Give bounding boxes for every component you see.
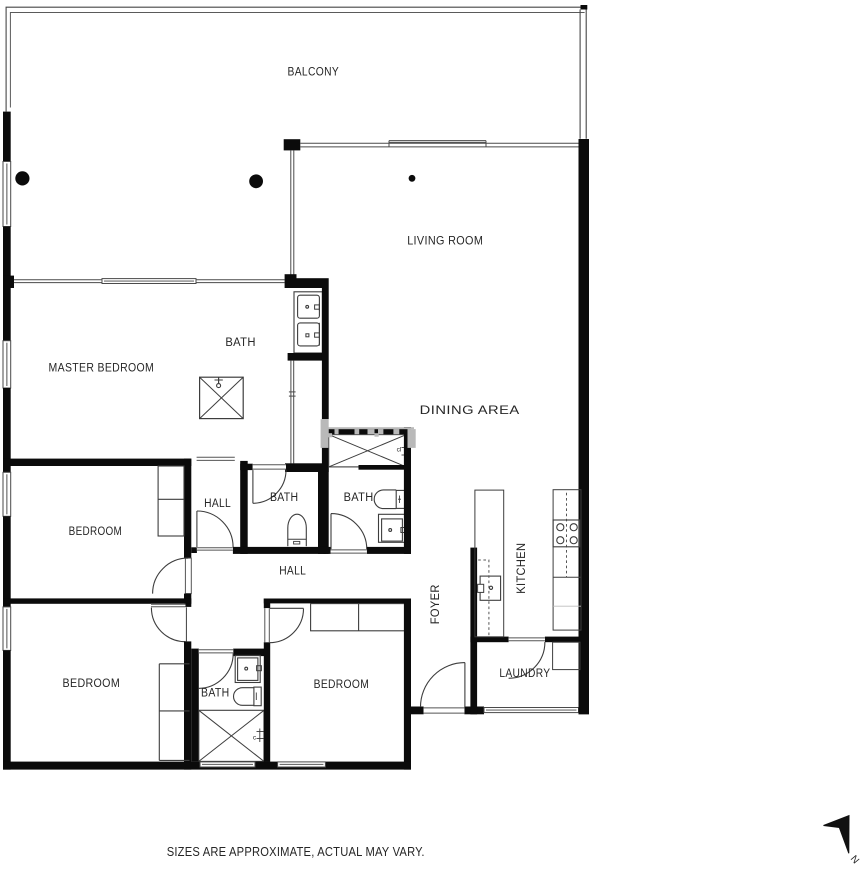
svg-text:BEDROOM: BEDROOM xyxy=(314,677,370,691)
svg-text:KITCHEN: KITCHEN xyxy=(514,543,528,594)
svg-text:LIVING ROOM: LIVING ROOM xyxy=(407,233,483,247)
svg-text:BALCONY: BALCONY xyxy=(288,64,340,78)
svg-text:cl: cl xyxy=(397,447,402,454)
svg-text:BATH: BATH xyxy=(270,490,299,504)
svg-text:BEDROOM: BEDROOM xyxy=(63,676,121,690)
svg-text:BATH: BATH xyxy=(225,335,256,349)
svg-text:MASTER BEDROOM: MASTER BEDROOM xyxy=(49,361,155,375)
svg-text:FOYER: FOYER xyxy=(428,584,442,624)
svg-text:DINING AREA: DINING AREA xyxy=(420,403,520,417)
svg-text:BEDROOM: BEDROOM xyxy=(69,524,123,538)
svg-text:BATH: BATH xyxy=(201,686,230,700)
svg-text:HALL: HALL xyxy=(279,564,306,578)
svg-text:HALL: HALL xyxy=(204,496,231,510)
svg-text:BATH: BATH xyxy=(344,490,374,504)
svg-text:SIZES ARE APPROXIMATE, ACTUAL: SIZES ARE APPROXIMATE, ACTUAL MAY VARY. xyxy=(167,844,425,859)
svg-text:LAUNDRY: LAUNDRY xyxy=(499,666,550,680)
